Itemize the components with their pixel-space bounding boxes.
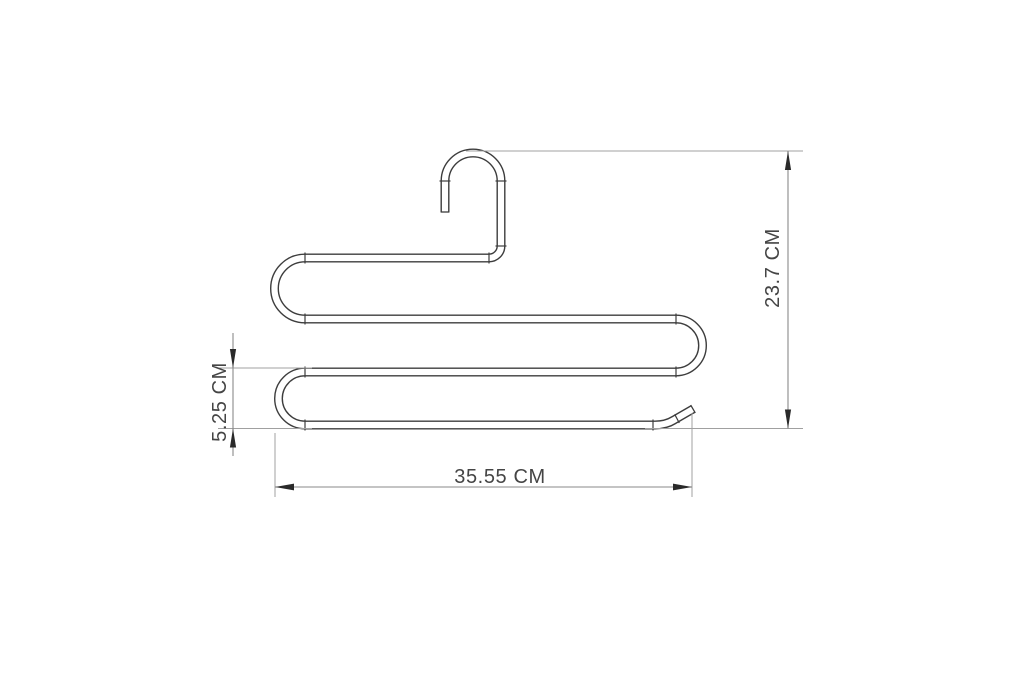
- technical-drawing: 23.7 CM 5.25 CM 35.55 CM: [0, 0, 1024, 683]
- tangent-tick-marks: [305, 181, 679, 431]
- tube-end-caps: [441, 212, 696, 413]
- arrow-left-icon: [275, 484, 294, 491]
- drawing-canvas: 23.7 CM 5.25 CM 35.55 CM: [0, 0, 1024, 683]
- hanger-tube-inner: [274, 153, 702, 425]
- hanger-tube-outer: [274, 153, 702, 425]
- dimension-tier-spacing: 5.25 CM: [209, 333, 312, 456]
- arrow-down-icon: [785, 410, 791, 429]
- dimension-label-total-width: 35.55 CM: [454, 466, 546, 488]
- hanger-outline: [274, 153, 702, 431]
- dimension-label-total-height: 23.7 CM: [762, 228, 784, 308]
- dimension-label-tier-spacing: 5.25 CM: [209, 362, 231, 442]
- arrow-up-icon: [785, 151, 791, 170]
- dimension-total-height: 23.7 CM: [466, 151, 803, 429]
- arrow-right-icon: [673, 484, 692, 491]
